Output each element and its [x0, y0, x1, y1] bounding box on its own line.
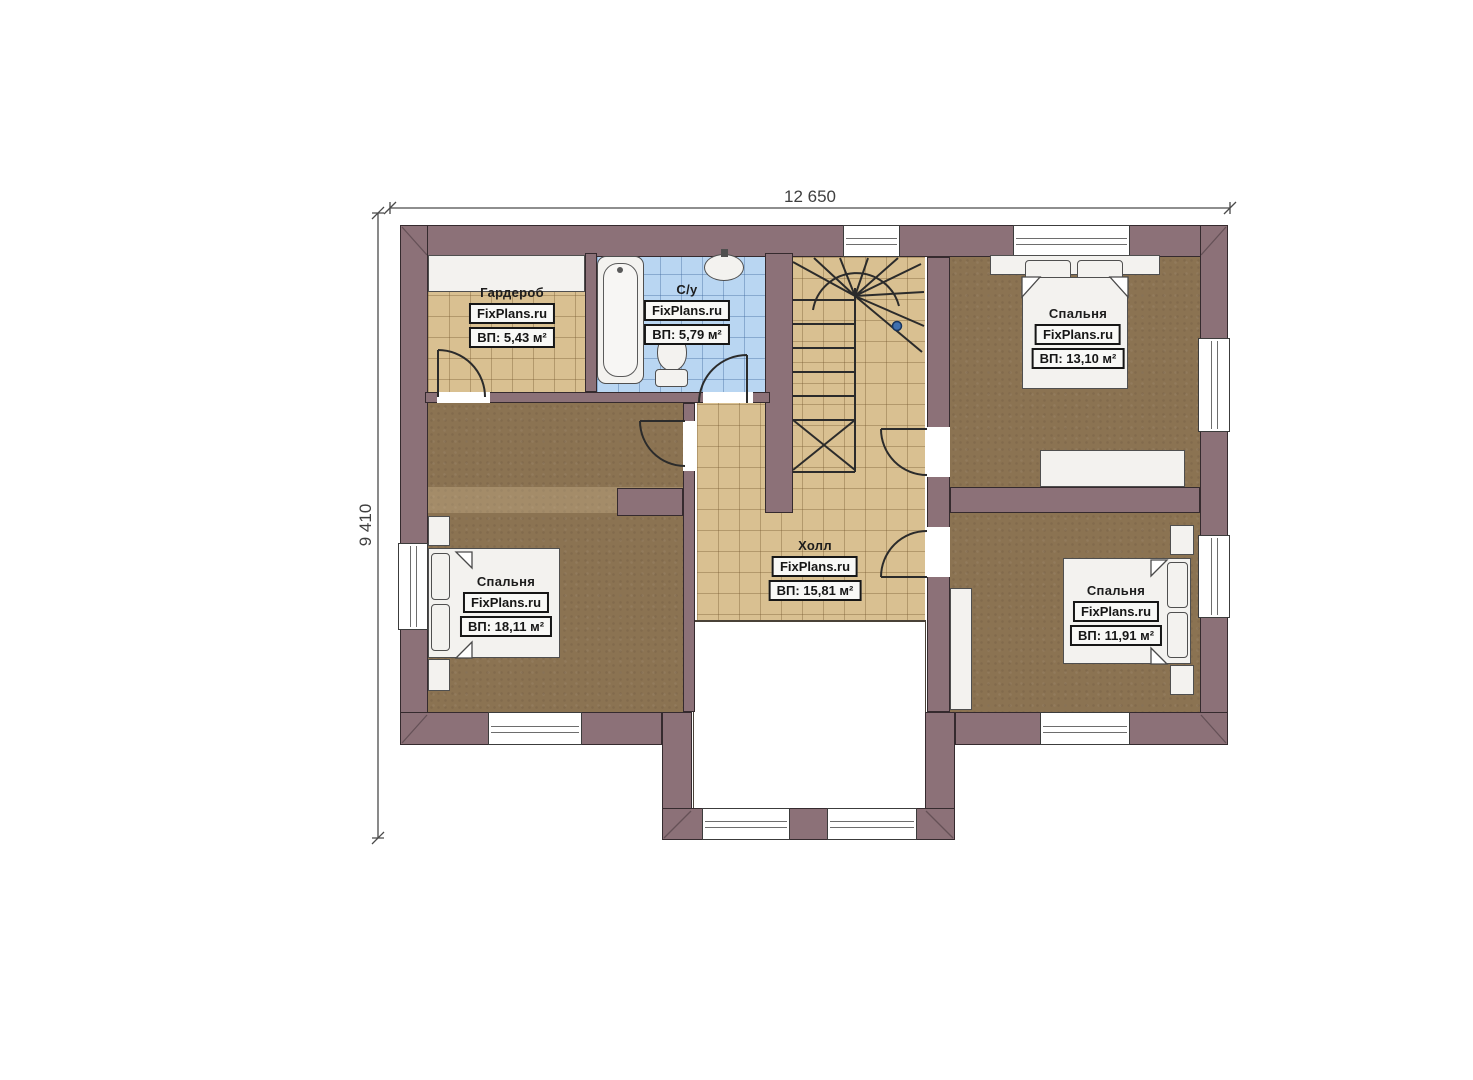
nightstand: [1170, 665, 1194, 695]
wall-left: [400, 225, 428, 745]
door-opening-bedroom-left: [683, 421, 695, 471]
room-area: ВП: 15,81 м²: [769, 580, 862, 601]
door-opening-bedroom-bottom-right: [927, 527, 950, 577]
watermark-text: FixPlans.ru: [772, 556, 858, 577]
wall-right: [1200, 225, 1228, 745]
nightstand: [1170, 525, 1194, 555]
room-label-wardrobe: Гардероб FixPlans.ru ВП: 5,43 м²: [469, 285, 555, 348]
door-opening-bathroom: [703, 392, 753, 403]
toilet-tank: [655, 369, 688, 387]
room-title: Спальня: [1087, 583, 1145, 598]
room-area: ВП: 18,11 м²: [460, 616, 552, 637]
window-stairwell-top: [843, 225, 900, 257]
wall-between-right-bedrooms: [950, 487, 1200, 513]
watermark-text: FixPlans.ru: [1073, 601, 1159, 622]
pillow: [431, 604, 450, 651]
floor-plan-canvas: Гардероб FixPlans.ru ВП: 5,43 м² С/у Fix…: [0, 0, 1473, 1080]
room-area: ВП: 11,91 м²: [1070, 625, 1162, 646]
headboard-shelf: [990, 255, 1160, 275]
window-extension-right: [827, 808, 917, 840]
room-label-bedroom-bottom-right: Спальня FixPlans.ru ВП: 11,91 м²: [1070, 583, 1162, 646]
room-title: Холл: [798, 538, 832, 553]
dimension-height: 9 410: [356, 504, 376, 547]
wall-wardrobe-bathroom: [585, 253, 597, 392]
wall-hall-right-bedrooms: [927, 257, 950, 712]
window-bedroom-bottom-right-bottom: [1040, 712, 1130, 745]
bathtub-faucet: [617, 267, 623, 273]
window-bedroom-left-side: [398, 543, 428, 630]
open-void-area: [693, 620, 926, 810]
nightstand: [428, 659, 450, 691]
room-title: Гардероб: [480, 285, 544, 300]
watermark-text: FixPlans.ru: [1035, 324, 1121, 345]
door-opening-bedroom-top-right: [927, 427, 950, 477]
door-opening-wardrobe: [437, 392, 490, 403]
wall-stub-bedroom-left: [617, 488, 683, 516]
watermark-text: FixPlans.ru: [644, 300, 730, 321]
room-area: ВП: 5,43 м²: [469, 327, 555, 348]
window-bedroom-bottom-right-side: [1198, 535, 1230, 618]
watermark-text: FixPlans.ru: [469, 303, 555, 324]
room-title: С/у: [676, 282, 697, 297]
pillow: [1167, 612, 1188, 658]
nightstand: [428, 516, 450, 546]
sink-tap: [721, 249, 728, 257]
room-label-bedroom-left: Спальня FixPlans.ru ВП: 18,11 м²: [460, 574, 552, 637]
wall-stairwell-left: [765, 253, 793, 513]
window-extension-left: [702, 808, 790, 840]
room-label-bedroom-top-right: Спальня FixPlans.ru ВП: 13,10 м²: [1032, 306, 1125, 369]
room-area: ВП: 5,79 м²: [644, 324, 730, 345]
window-bedroom-top-right-side: [1198, 338, 1230, 432]
bathroom-sink: [704, 254, 744, 281]
room-area: ВП: 13,10 м²: [1032, 348, 1125, 369]
window-bedroom-top-right-top: [1013, 225, 1130, 257]
pillow: [431, 553, 450, 600]
dimension-width: 12 650: [784, 187, 836, 207]
window-bedroom-left-bottom: [488, 712, 582, 745]
pillow: [1167, 562, 1188, 608]
closet: [950, 588, 972, 710]
watermark-text: FixPlans.ru: [463, 592, 549, 613]
room-title: Спальня: [477, 574, 535, 589]
room-label-hall: Холл FixPlans.ru ВП: 15,81 м²: [769, 538, 862, 601]
room-title: Спальня: [1049, 306, 1107, 321]
bathtub-basin: [603, 263, 638, 377]
dresser: [1040, 450, 1185, 487]
bathtub: [597, 256, 644, 384]
room-label-bathroom: С/у FixPlans.ru ВП: 5,79 м²: [644, 282, 730, 345]
